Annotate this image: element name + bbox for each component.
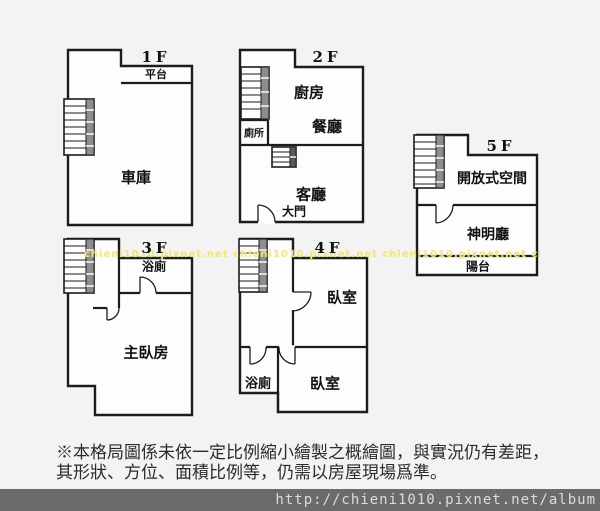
stairs-icon — [414, 135, 444, 188]
stairs-icon — [239, 239, 267, 292]
floor-label-4f: 4F — [314, 239, 343, 257]
room-label-toilet: 廁所 — [244, 125, 264, 140]
footer-url: http://chieni1010.pixnet.net/album — [0, 489, 600, 511]
room-label-dining: 餐廳 — [312, 116, 342, 137]
room-label-kitchen: 廚房 — [294, 82, 324, 103]
room-label-bath-4f: 浴廁 — [245, 373, 271, 392]
floor-label-3f: 3F — [141, 239, 170, 257]
room-label-balcony: 陽台 — [466, 258, 490, 275]
room-label-platform: 平台 — [145, 66, 167, 82]
stairs-stub-icon — [272, 147, 296, 167]
room-label-open-space: 開放式空間 — [457, 168, 527, 188]
stairs-icon — [64, 239, 94, 293]
room-label-garage: 車庫 — [121, 167, 151, 188]
room-label-master-bedroom: 主臥房 — [123, 342, 168, 363]
footer-bar: http://chieni1010.pixnet.net/album — [0, 489, 600, 511]
stairs-icon — [64, 99, 94, 155]
room-label-shrine-hall: 神明廳 — [467, 224, 509, 244]
disclaimer-line2: 其形狀、方位、面積比例等，仍需以房屋現場爲準。 — [56, 463, 576, 483]
room-label-living: 客廳 — [296, 184, 326, 205]
room-label-bedroom-lower: 臥室 — [310, 373, 340, 394]
room-label-bath-3f: 浴廁 — [142, 258, 166, 275]
floorplan-page: chieni1010.pixnet.net chieni1010.pixnet.… — [0, 0, 600, 511]
stairs-icon — [241, 67, 269, 119]
floor-label-2f: 2F — [312, 48, 341, 66]
room-label-main-door: 大門 — [282, 203, 306, 220]
floor-label-1f: 1F — [141, 48, 170, 66]
floor-label-5f: 5F — [486, 137, 515, 155]
disclaimer: ※本格局圖係未依一定比例縮小繪製之概繪圖，與實況仍有差距， 其形狀、方位、面積比… — [56, 443, 576, 483]
disclaimer-line1: ※本格局圖係未依一定比例縮小繪製之概繪圖，與實況仍有差距， — [56, 443, 576, 463]
room-label-bedroom-upper: 臥室 — [327, 287, 357, 308]
